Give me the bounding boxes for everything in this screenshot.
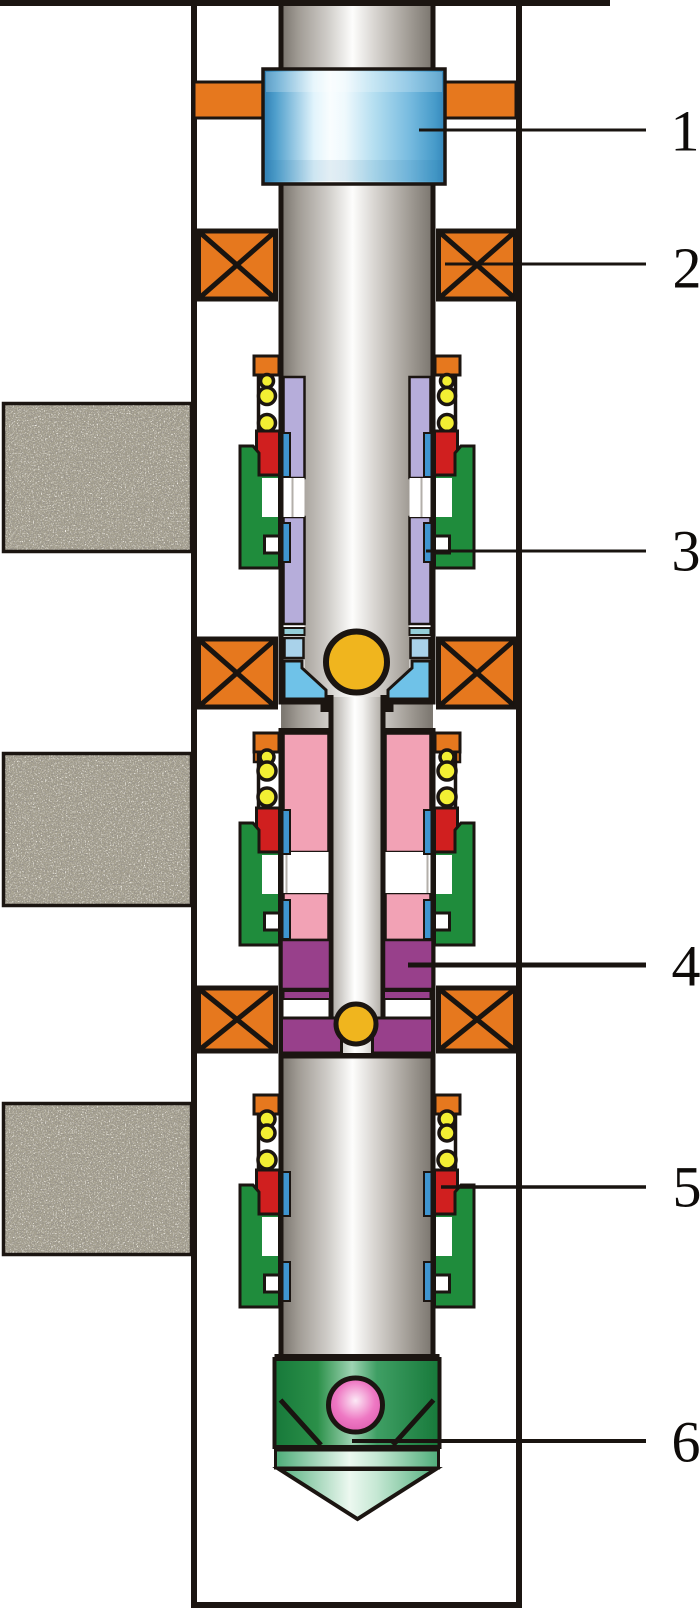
svg-text:2: 2 <box>673 236 700 301</box>
svg-text:4: 4 <box>672 934 700 999</box>
svg-text:5: 5 <box>673 1155 700 1220</box>
svg-text:6: 6 <box>672 1410 700 1475</box>
svg-text:1: 1 <box>671 99 700 164</box>
svg-text:3: 3 <box>672 519 700 584</box>
